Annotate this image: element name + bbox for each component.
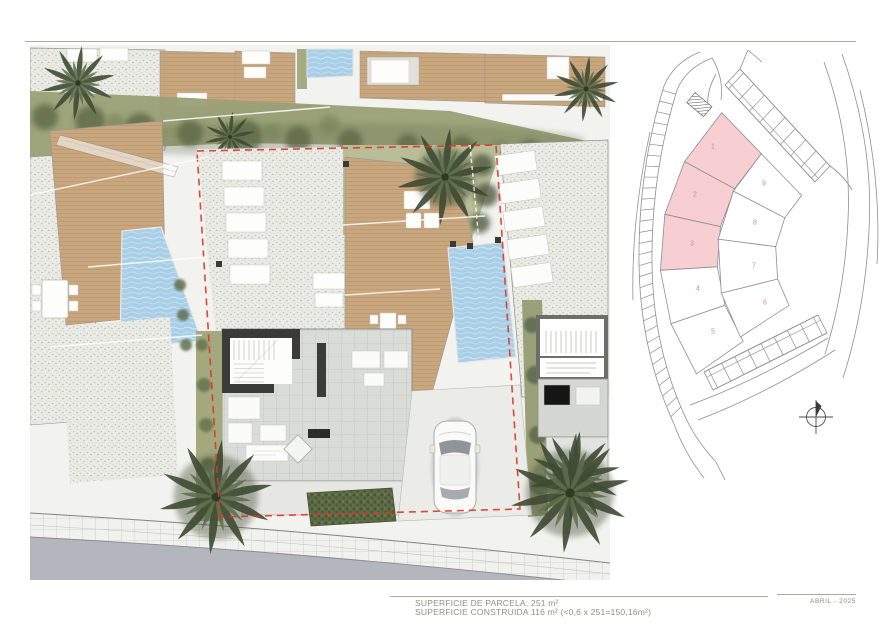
area-notes: SUPERFICIE DE PARCELA: 251 m² SUPERFICIE… bbox=[415, 599, 651, 617]
key-plan-plot-number-9: 9 bbox=[762, 181, 766, 188]
date-rule bbox=[777, 594, 856, 595]
key-plan-plots: 123456789 bbox=[660, 113, 801, 374]
key-plan-plot-number-3: 3 bbox=[690, 241, 694, 248]
key-plan-plot-number-8: 8 bbox=[753, 220, 757, 227]
notes-rule bbox=[390, 596, 768, 597]
key-plan-plot-number-1: 1 bbox=[711, 144, 715, 151]
bench bbox=[308, 429, 330, 438]
car bbox=[430, 417, 480, 517]
key-plan-plot-number-6: 6 bbox=[763, 300, 767, 307]
site-plan-rendering bbox=[30, 45, 630, 580]
key-plan-plot-number-2: 2 bbox=[693, 192, 697, 199]
hedge bbox=[307, 488, 396, 526]
sheet: 123456789 bbox=[0, 0, 880, 640]
plan-date: ABRIL - 2025 bbox=[777, 598, 856, 605]
location-key-plan: 123456789 bbox=[628, 48, 880, 480]
north-symbol bbox=[799, 400, 833, 434]
key-plan-plot-number-4: 4 bbox=[696, 286, 700, 293]
superficie-construida-note: SUPERFICIE CONSTRUIDA 116 m² (<0,6 x 251… bbox=[415, 608, 651, 617]
key-plan-plot-number-5: 5 bbox=[711, 329, 715, 336]
top-border-rule bbox=[25, 41, 856, 42]
key-plan-plot-number-7: 7 bbox=[752, 263, 756, 270]
neighbour-pool bbox=[307, 49, 353, 78]
